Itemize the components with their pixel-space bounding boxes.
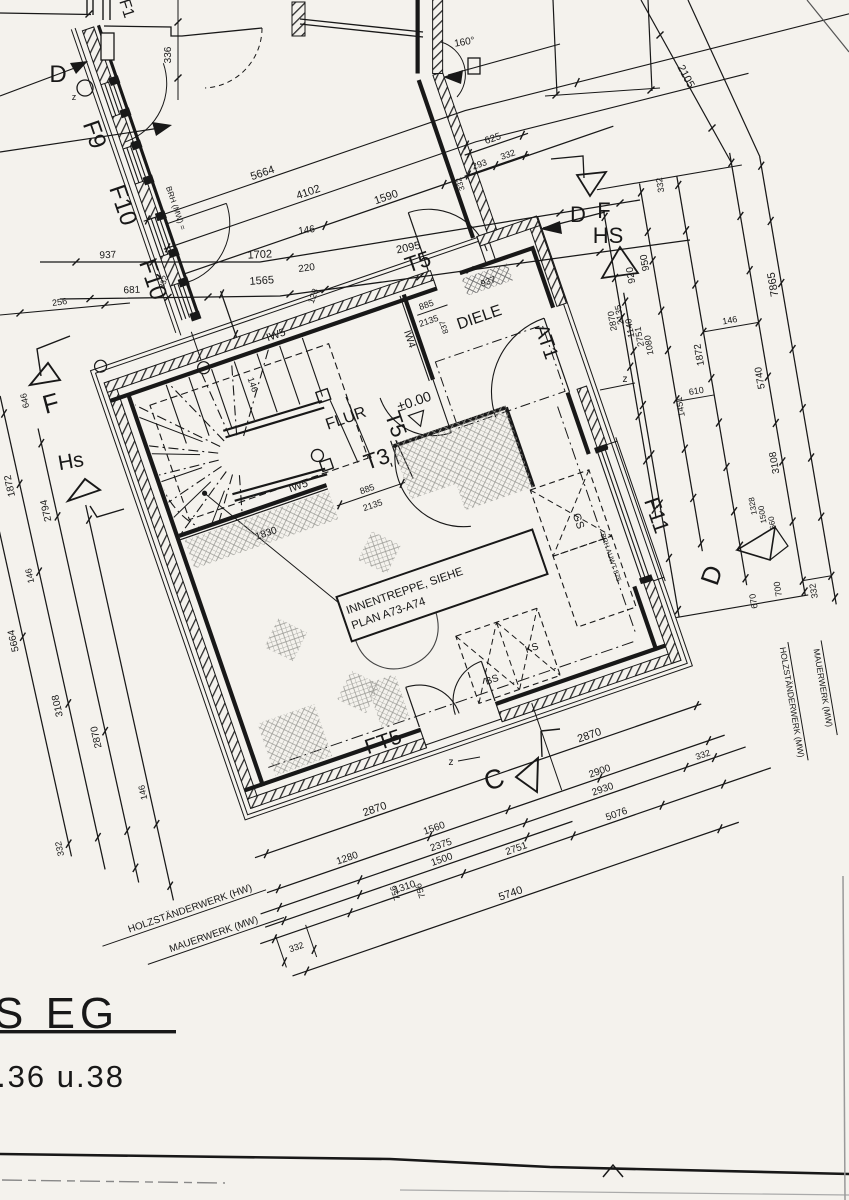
svg-text:.36 u.38: .36 u.38 bbox=[0, 1059, 125, 1094]
svg-text:Hs: Hs bbox=[56, 448, 85, 475]
svg-text:937: 937 bbox=[99, 250, 117, 262]
svg-text:336: 336 bbox=[163, 46, 174, 63]
svg-text:1702: 1702 bbox=[247, 248, 272, 261]
svg-text:F: F bbox=[597, 198, 610, 223]
svg-text:HS: HS bbox=[593, 223, 624, 248]
svg-text:D: D bbox=[49, 61, 66, 88]
svg-text:z: z bbox=[449, 757, 454, 768]
svg-text:1565: 1565 bbox=[249, 274, 274, 288]
svg-text:256: 256 bbox=[51, 296, 67, 308]
svg-text:D: D bbox=[570, 202, 586, 227]
svg-text:z: z bbox=[623, 374, 628, 385]
svg-text:681: 681 bbox=[123, 285, 141, 297]
svg-text:z: z bbox=[72, 92, 77, 102]
